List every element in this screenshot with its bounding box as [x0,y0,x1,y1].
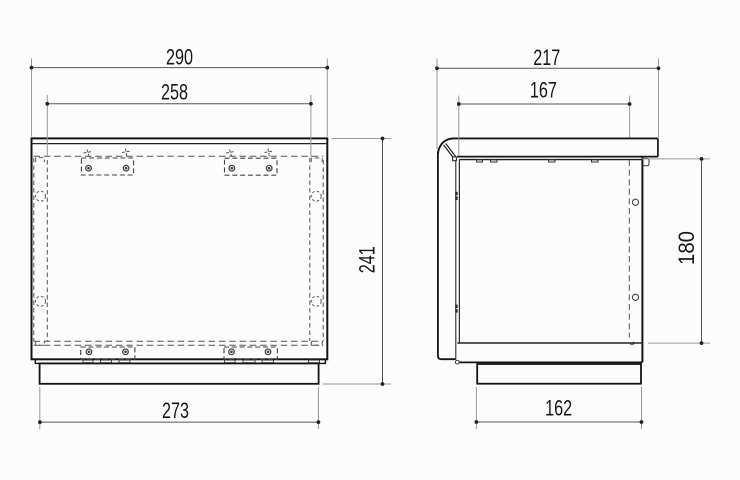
svg-text:162: 162 [545,395,572,420]
svg-text:290: 290 [166,45,193,70]
svg-text:273: 273 [162,398,189,423]
svg-text:241: 241 [355,246,380,273]
svg-text:167: 167 [530,78,557,103]
svg-text:258: 258 [161,79,188,104]
svg-text:180: 180 [674,231,699,265]
svg-text:217: 217 [533,45,560,70]
